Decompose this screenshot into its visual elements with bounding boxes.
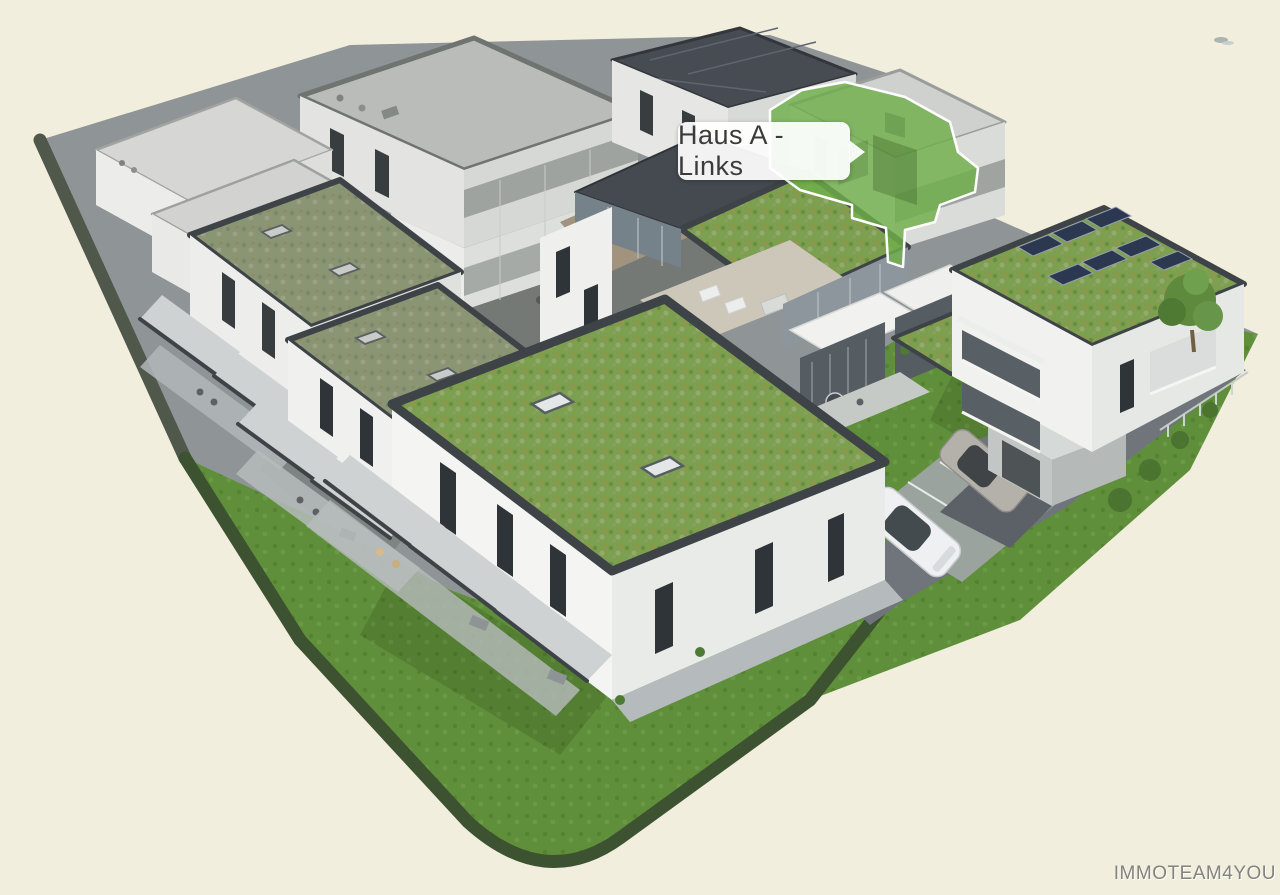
watermark-text: IMMOTEAM4YOU [1114, 863, 1276, 885]
render-viewport: Haus A - Links IMMOTEAM4YOU [0, 0, 1280, 895]
site-3d-render [0, 0, 1280, 895]
building-tooltip: Haus A - Links [678, 122, 850, 180]
tooltip-arrow-right-icon [849, 140, 865, 164]
building-tooltip-label: Haus A - Links [678, 120, 850, 182]
